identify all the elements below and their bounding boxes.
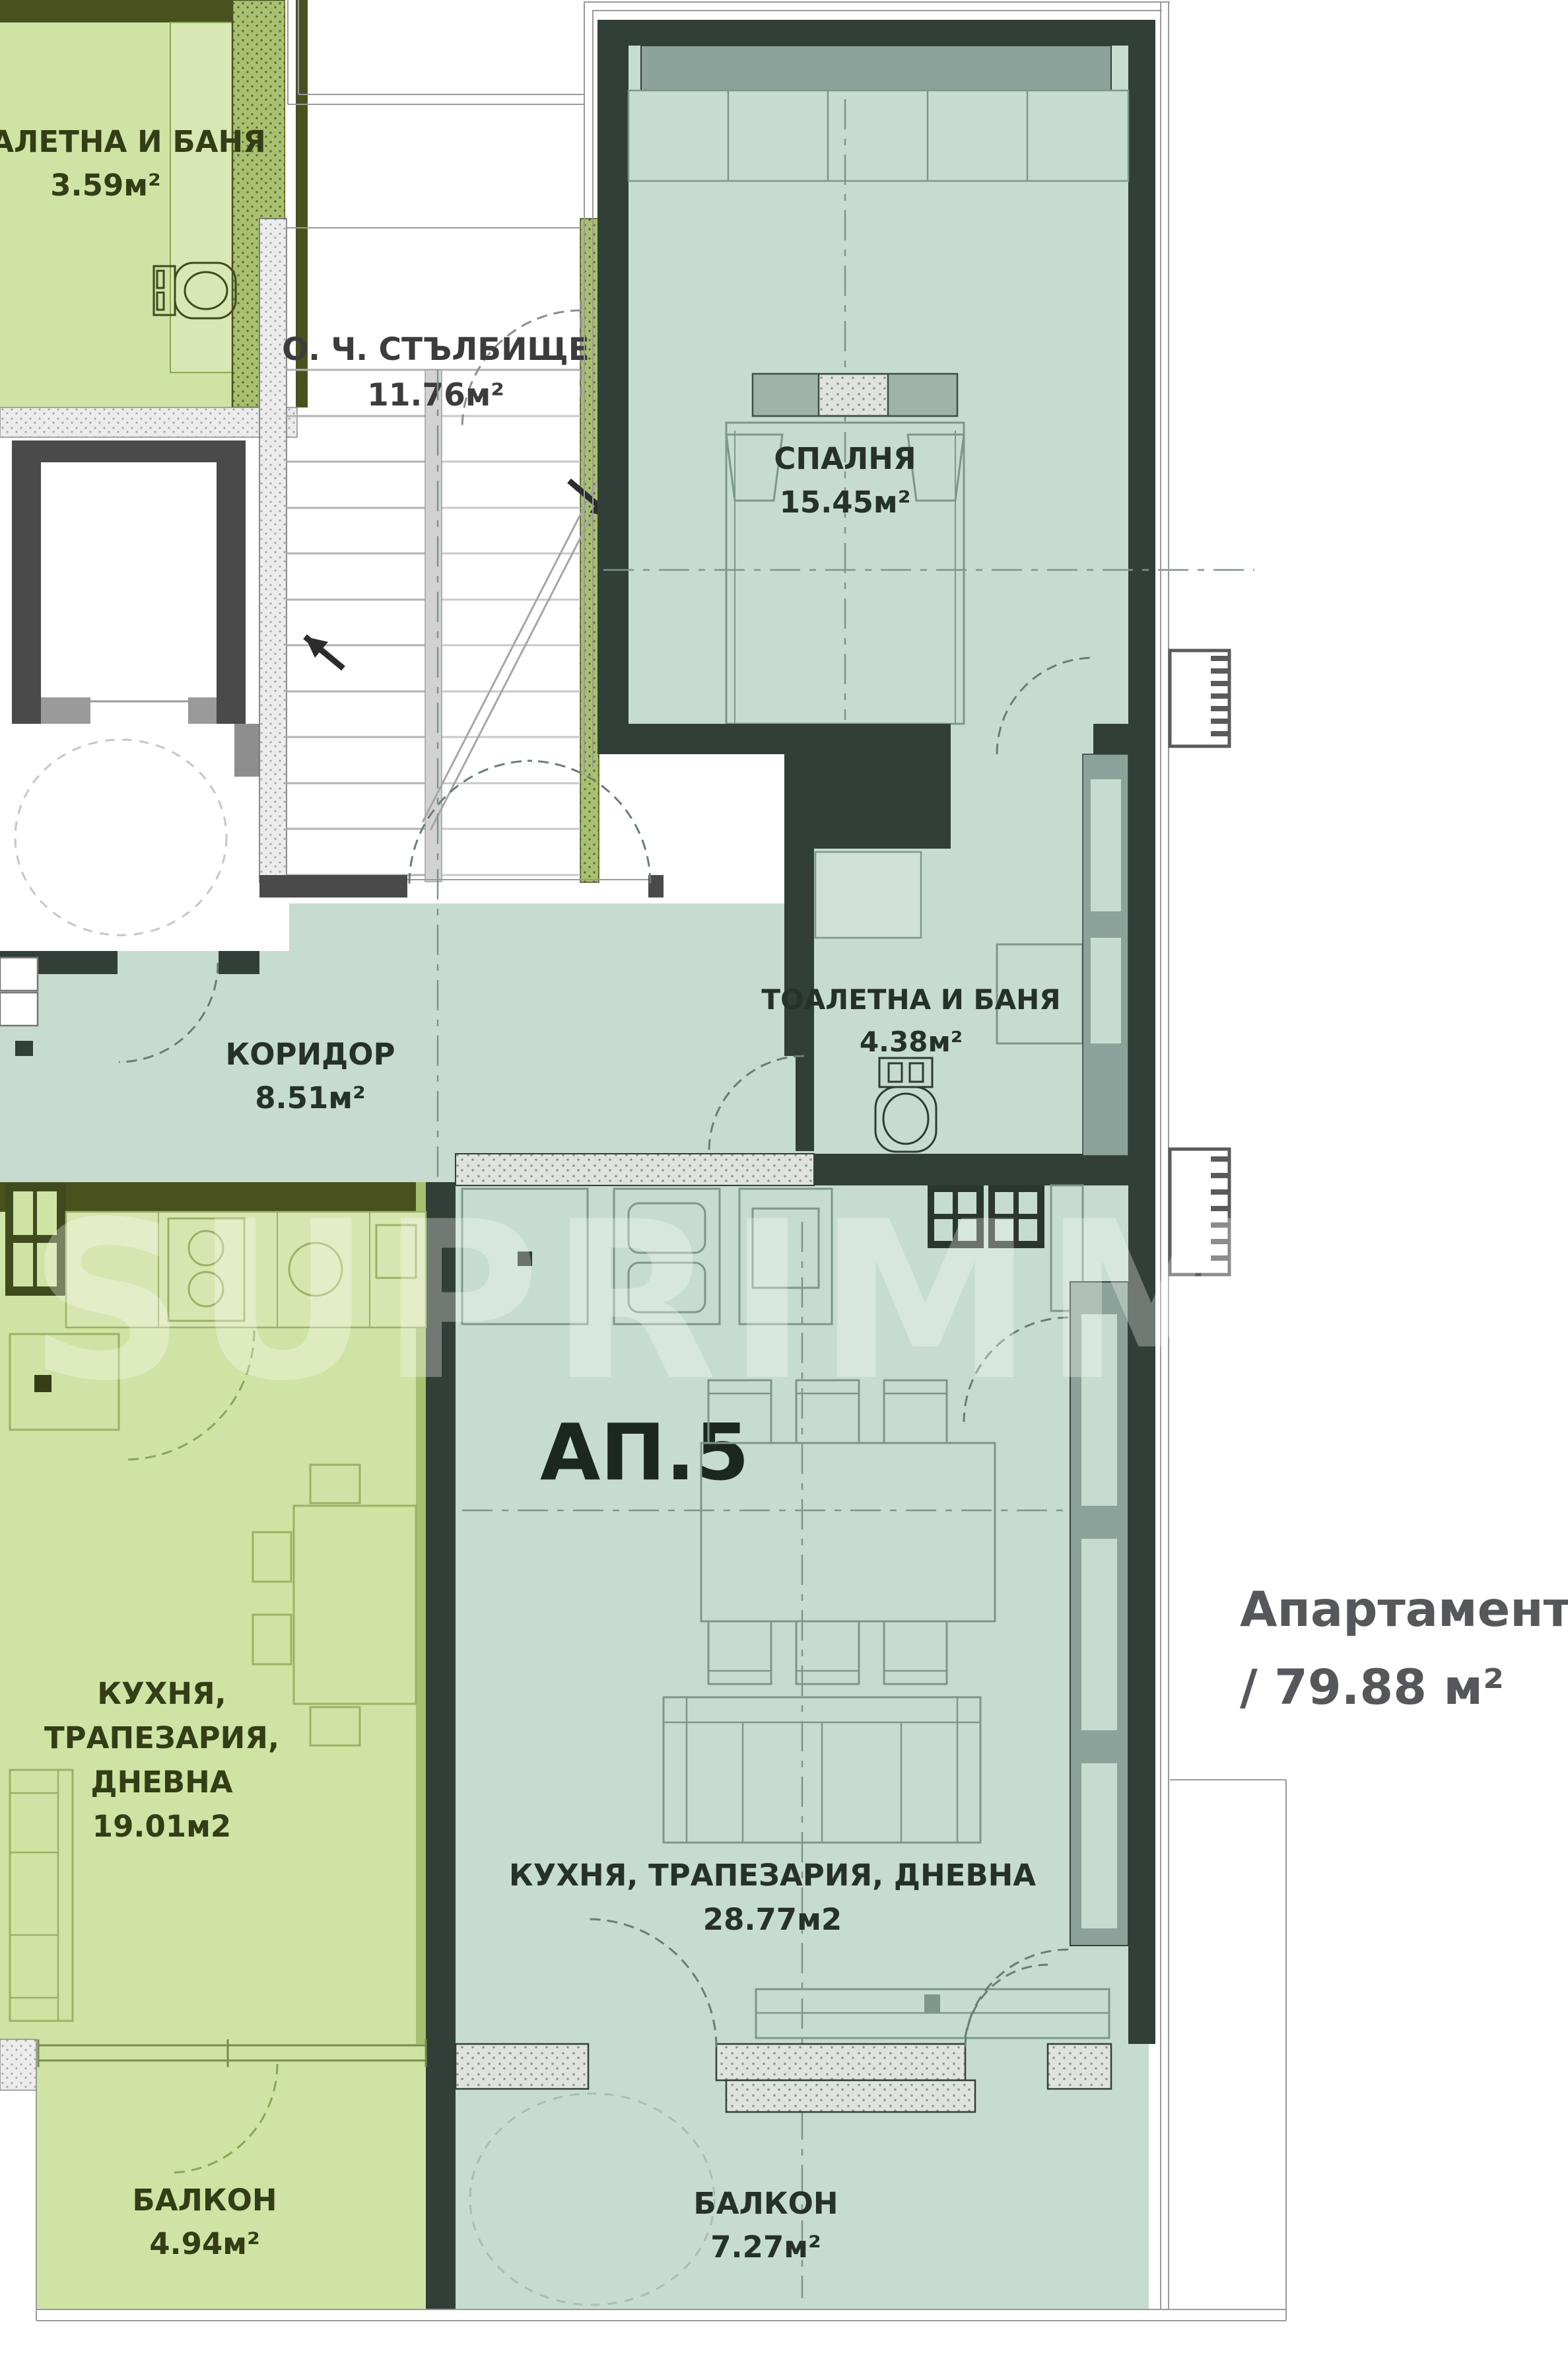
elevator bbox=[12, 440, 284, 935]
title-line1: Апартамент 5 bbox=[1240, 1582, 1568, 1638]
balcony-main-area: 7.27м² bbox=[710, 2230, 821, 2265]
corner-sq bbox=[1111, 46, 1128, 90]
shaft-box bbox=[0, 958, 38, 991]
watermark-text: SUPRIMMO bbox=[28, 1175, 1464, 1428]
balcony-railing bbox=[36, 2309, 1286, 2321]
door-stub bbox=[41, 697, 90, 724]
kitchen-left-line1: КУХНЯ, bbox=[97, 1676, 226, 1711]
building-edge-lines bbox=[1161, 2, 1169, 2309]
hatched-wall bbox=[716, 2044, 965, 2080]
balcony-left-fill bbox=[36, 2044, 426, 2309]
hatched-wall bbox=[456, 2044, 588, 2089]
wardrobe-inset bbox=[1081, 1763, 1117, 1928]
bathroom-name: ТОАЛЕТНА И БАНЯ bbox=[761, 983, 1060, 1016]
joint-teeth bbox=[1211, 658, 1229, 734]
wardrobe-inset bbox=[1081, 1539, 1117, 1730]
title-line2: / 79.88 м² bbox=[1240, 1660, 1504, 1716]
corridor-name: КОРИДОР bbox=[226, 1037, 395, 1072]
shower-tray bbox=[815, 852, 921, 938]
bathroom-area: 4.38м² bbox=[860, 1026, 963, 1058]
exterior-wall-band bbox=[0, 407, 297, 437]
bathroom-door-leaf bbox=[796, 1056, 814, 1151]
stair-bottom-wall bbox=[259, 875, 407, 897]
corridor-top-stub bbox=[219, 951, 259, 974]
floor-plan: ТОАЛЕТНА И БАНЯ 3.59м² О. Ч. СТЪЛБИЩЕ bbox=[0, 0, 1568, 2357]
plan-title: Апартамент 5 / 79.88 м² bbox=[1240, 1582, 1568, 1716]
expansion-joint-1 bbox=[1170, 651, 1229, 746]
stair-divider bbox=[425, 370, 442, 882]
stair-steps-right bbox=[442, 416, 580, 875]
kitchen-left-line3: ДНЕВНА bbox=[90, 1765, 232, 1800]
stairwell-area: 11.76м² bbox=[367, 377, 504, 413]
tv-icon bbox=[924, 1994, 940, 2013]
kitchen-main-area: 28.77м2 bbox=[703, 1902, 842, 1937]
bathroom-left-wall bbox=[784, 849, 814, 1056]
dresser-mid bbox=[819, 375, 888, 415]
hatched-wall bbox=[1048, 2044, 1111, 2089]
bathroom-block-wall bbox=[784, 724, 951, 849]
toilet-top-area: 3.59м² bbox=[50, 168, 161, 203]
wardrobe-band bbox=[641, 46, 1111, 90]
right-wall bbox=[1128, 20, 1155, 2044]
door-stub bbox=[188, 697, 217, 724]
shaft-box bbox=[0, 993, 38, 1026]
stairwell-name: О. Ч. СТЪЛБИЩЕ bbox=[282, 332, 590, 368]
dresser bbox=[753, 374, 957, 416]
balcony-left-area: 4.94м² bbox=[149, 2226, 260, 2261]
fixture-inset bbox=[1091, 938, 1121, 1043]
bedroom-bottom-wall bbox=[629, 724, 784, 754]
bedroom-left-wall bbox=[597, 20, 629, 754]
corner-sq bbox=[629, 46, 641, 90]
shaft-dot bbox=[15, 1041, 33, 1056]
elevator-cab bbox=[41, 462, 217, 701]
fixture-inset bbox=[1091, 779, 1121, 911]
bedroom-top-wall bbox=[597, 20, 1155, 46]
balcony-left-name: БАЛКОН bbox=[132, 2183, 277, 2218]
balcony-wall-stub bbox=[0, 2039, 36, 2090]
toilet-top-name: ТОАЛЕТНА И БАНЯ bbox=[0, 124, 266, 159]
kitchen-left-line2: ТРАПЕЗАРИЯ, bbox=[44, 1720, 279, 1755]
kitchen-left-area: 19.01м2 bbox=[92, 1809, 231, 1844]
kitchen-main-name: КУХНЯ, ТРАПЕЗАРИЯ, ДНЕВНА bbox=[509, 1858, 1036, 1893]
bedroom-bottom-stub bbox=[1093, 724, 1128, 754]
bedroom-area: 15.45м² bbox=[780, 485, 911, 520]
stair-left-wall bbox=[259, 219, 287, 882]
building-outline-step bbox=[288, 0, 584, 104]
shower-panel bbox=[170, 22, 232, 372]
corridor-area: 8.51м² bbox=[255, 1080, 366, 1115]
party-wall-hatch bbox=[580, 219, 599, 882]
hatched-wall-layer2 bbox=[726, 2080, 975, 2112]
plot-line bbox=[1170, 1780, 1286, 2321]
bedroom-name: СПАЛНЯ bbox=[774, 441, 916, 476]
balcony-main-name: БАЛКОН bbox=[693, 2186, 838, 2221]
landing-swing-dashed bbox=[15, 740, 226, 935]
